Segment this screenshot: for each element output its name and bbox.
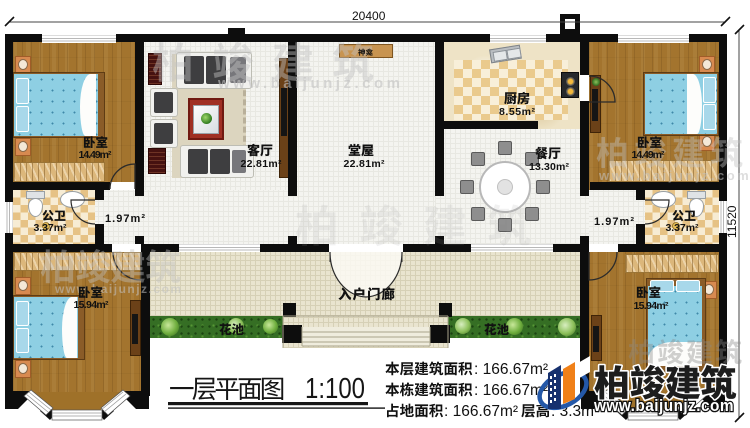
svg-text:13.30m²: 13.30m² [529, 161, 570, 173]
svg-text:3.37m²: 3.37m² [666, 222, 700, 234]
svg-text:11520: 11520 [725, 205, 739, 238]
svg-text:: 166.67m²: : 166.67m² [444, 403, 518, 420]
svg-text:20400: 20400 [352, 9, 386, 23]
svg-text:1.97m²: 1.97m² [105, 213, 145, 225]
svg-text:22.81m²: 22.81m² [344, 158, 386, 170]
svg-text:: 166.67m²: : 166.67m² [474, 361, 548, 378]
svg-text:www.baijunjz.com: www.baijunjz.com [54, 282, 183, 296]
svg-text:www.baijunjz.com: www.baijunjz.com [217, 75, 403, 92]
svg-text:1.97m²: 1.97m² [594, 216, 634, 228]
svg-text:22.81m²: 22.81m² [241, 158, 283, 170]
svg-text:15.94m²: 15.94m² [74, 299, 110, 311]
svg-text:14.49m²: 14.49m² [632, 149, 666, 161]
svg-text:3.37m²: 3.37m² [34, 222, 68, 234]
svg-text:14.49m²: 14.49m² [79, 149, 113, 161]
svg-text:: 166.67m²: : 166.67m² [474, 382, 548, 399]
svg-text:8.55m²: 8.55m² [499, 106, 536, 118]
svg-text:www.baijunjz.com: www.baijunjz.com [598, 168, 750, 183]
svg-text:1:100: 1:100 [305, 373, 365, 405]
svg-text:15.94m²: 15.94m² [634, 300, 670, 312]
svg-text:www.baijunjz.com: www.baijunjz.com [593, 396, 734, 415]
